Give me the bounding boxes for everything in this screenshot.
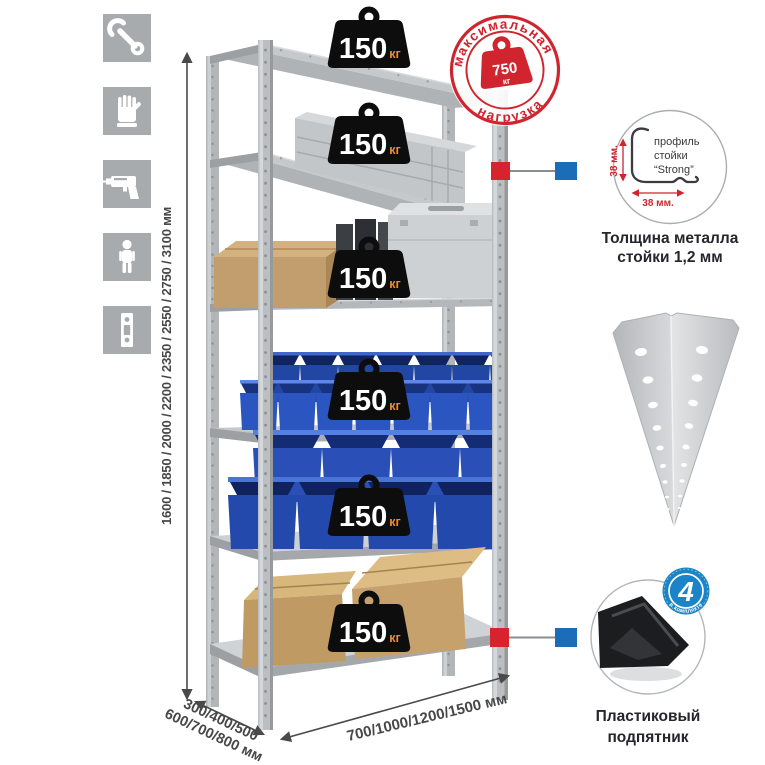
load-value: 150	[339, 129, 387, 161]
load-value: 150	[339, 263, 387, 295]
upright-strip-icon	[103, 306, 151, 354]
wrench-icon	[103, 14, 151, 62]
infographic-canvas: 1600 / 1850 / 2000 / 2200 / 2350 / 2550 …	[0, 0, 765, 765]
load-value: 150	[339, 617, 387, 649]
width-dimension: 700/1000/1200/1500 мм	[282, 676, 509, 745]
gloves-icon	[103, 87, 151, 135]
back-left-post	[206, 56, 219, 707]
metal-thickness-caption-1: Толщина металла	[602, 230, 739, 247]
profile-detail: 38 мм. 38 мм. профиль стойки “Strong”	[609, 111, 727, 224]
profile-callout-connector	[491, 162, 577, 180]
load-unit: кг	[389, 399, 400, 413]
shelving-infographic: 1600 / 1850 / 2000 / 2200 / 2350 / 2550 …	[0, 0, 765, 765]
blue-connector-square-bottom	[555, 628, 577, 647]
profile-label-3: “Strong”	[654, 164, 694, 176]
angle-post-image	[613, 313, 739, 526]
load-unit: кг	[389, 143, 400, 157]
max-load-stamp: максимальная нагрузка 750 кг	[442, 7, 568, 133]
metal-thickness-caption-2: стойки 1,2 мм	[617, 249, 722, 266]
load-unit: кг	[389, 277, 400, 291]
kit-count-value: 4	[677, 576, 694, 607]
profile-dim-vertical: 38 мм.	[609, 145, 620, 177]
profile-label-2: стойки	[654, 150, 688, 162]
load-unit: кг	[389, 631, 400, 645]
person-icon	[103, 233, 151, 281]
blue-connector-square-top	[555, 162, 577, 180]
kit-count-badge: 4 в комплекте	[663, 568, 710, 615]
load-value: 150	[339, 33, 387, 65]
load-value: 150	[339, 501, 387, 533]
load-unit: кг	[389, 515, 400, 529]
red-connector-square-bottom	[490, 628, 509, 647]
assembly-icons	[103, 14, 151, 354]
cardboard-box-small	[214, 241, 348, 308]
foot-callout-connector	[490, 628, 577, 647]
height-options-label: 1600 / 1850 / 2000 / 2200 / 2350 / 2550 …	[159, 207, 174, 525]
drill-icon	[103, 160, 151, 208]
load-badge-1: 150 кг	[328, 10, 411, 69]
front-right-post	[492, 90, 508, 700]
load-value: 150	[339, 385, 387, 417]
load-unit: кг	[389, 47, 400, 61]
profile-label-1: профиль	[654, 136, 700, 148]
plastic-foot-caption-1: Пластиковый	[596, 708, 701, 725]
red-connector-square-top	[491, 162, 510, 180]
height-dimension: 1600 / 1850 / 2000 / 2200 / 2350 / 2550 …	[159, 54, 187, 698]
plastic-foot-detail: 4 в комплекте	[591, 568, 710, 695]
profile-dim-horizontal: 38 мм.	[642, 198, 674, 209]
load-badge-2: 150 кг	[328, 106, 411, 165]
front-left-post	[258, 40, 273, 730]
plastic-foot-caption-2: подпятник	[607, 729, 688, 746]
